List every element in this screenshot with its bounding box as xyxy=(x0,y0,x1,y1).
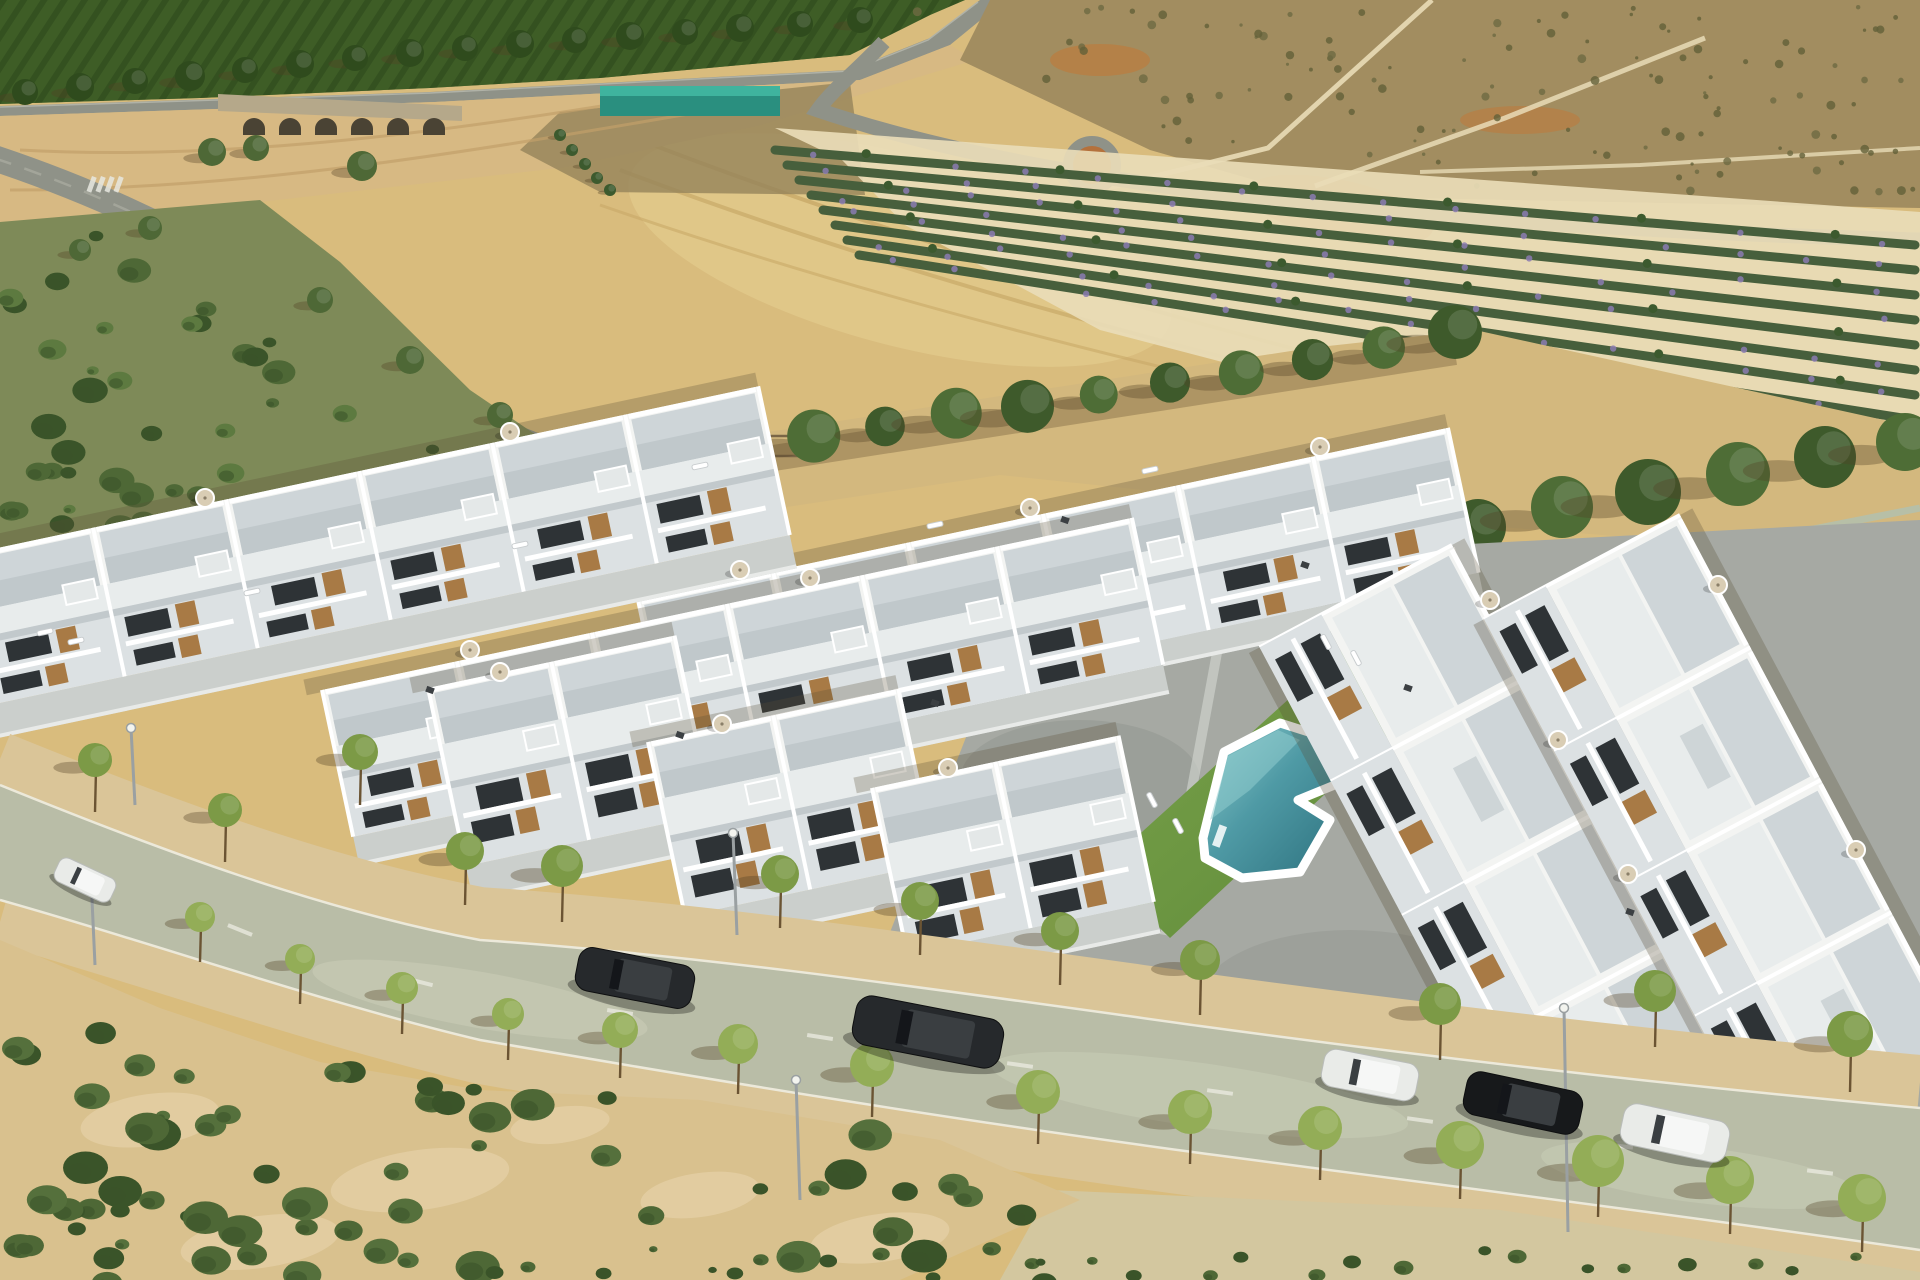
bush-shade xyxy=(112,1209,123,1217)
scrub-dot xyxy=(1372,78,1377,83)
lavender-dot xyxy=(1211,293,1217,299)
row-sapling xyxy=(1834,327,1843,336)
tree-highlight xyxy=(681,21,695,35)
tree-highlight xyxy=(595,173,602,180)
lavender-dot xyxy=(1803,257,1809,263)
bush-shade xyxy=(97,326,107,333)
row-sapling xyxy=(1443,198,1452,207)
tree-highlight xyxy=(460,835,481,856)
tree-highlight xyxy=(296,947,313,964)
parasol-pole xyxy=(946,766,949,769)
tree-highlight xyxy=(1844,1015,1869,1040)
bush-shade xyxy=(216,1112,231,1123)
scrub-dot xyxy=(1287,12,1292,17)
tree-highlight xyxy=(504,1001,522,1019)
scrub-dot xyxy=(1388,66,1392,70)
tree-highlight xyxy=(147,218,160,231)
scrub-dot xyxy=(1417,126,1425,134)
scrub-dot xyxy=(1042,75,1050,83)
parasol-pole xyxy=(1488,598,1491,601)
scrub-dot xyxy=(1799,153,1805,159)
tree-highlight xyxy=(807,414,836,443)
row-sapling xyxy=(1836,376,1845,385)
lavender-dot xyxy=(1164,180,1170,186)
tree-highlight xyxy=(615,1015,635,1035)
lamp-head xyxy=(1560,1004,1569,1013)
scrub-dot xyxy=(1080,47,1088,55)
tree-highlight xyxy=(915,885,936,906)
bush-shade xyxy=(709,1269,714,1272)
lavender-dot xyxy=(1873,289,1879,295)
bush-shade xyxy=(186,1213,211,1231)
lavender-dot xyxy=(1265,261,1271,267)
lavender-dot xyxy=(1119,227,1125,233)
bush-shade xyxy=(754,1258,763,1264)
row-sapling xyxy=(1249,181,1258,190)
lavender-dot xyxy=(944,254,950,260)
bush-shade xyxy=(640,1213,654,1224)
scrub-dot xyxy=(1667,30,1670,33)
row-sapling xyxy=(1110,270,1119,279)
scrub-dot xyxy=(1334,65,1342,73)
bush-shade xyxy=(217,429,228,437)
scrub-dot xyxy=(1850,186,1858,194)
tree-highlight xyxy=(1448,310,1478,340)
row-sapling xyxy=(1831,230,1840,239)
lavender-dot xyxy=(1194,253,1200,259)
bush-shade xyxy=(264,341,272,346)
wood-panel xyxy=(1082,653,1106,677)
scrub-dot xyxy=(1676,174,1682,180)
lavender-dot xyxy=(1737,230,1743,236)
lavender-dot xyxy=(1386,215,1392,221)
scrub-dot xyxy=(1367,152,1373,158)
scrub-dot xyxy=(1826,101,1835,110)
tree-highlight xyxy=(1649,974,1672,997)
bush-shade xyxy=(1036,1261,1041,1265)
lavender-dot xyxy=(1522,211,1528,217)
bush-shade xyxy=(1344,1260,1354,1267)
wood-panel xyxy=(311,606,335,630)
bush-shade xyxy=(599,1096,609,1104)
row-sapling xyxy=(1263,220,1272,229)
lavender-dot xyxy=(1033,183,1039,189)
bush-shade xyxy=(127,1062,144,1074)
bush-shade xyxy=(1009,1212,1025,1224)
tree-highlight xyxy=(1307,343,1330,366)
scrub-dot xyxy=(1481,93,1489,101)
lavender-dot xyxy=(1322,251,1328,257)
scrub-dot xyxy=(1659,23,1666,30)
tree-highlight xyxy=(1020,384,1049,413)
tree-highlight xyxy=(1591,1139,1620,1168)
bush-shade xyxy=(30,1196,52,1212)
row-sapling xyxy=(1092,235,1101,244)
lavender-dot xyxy=(952,163,958,169)
lavender-dot xyxy=(989,231,995,237)
scrub-dot xyxy=(1703,94,1708,99)
lavender-dot xyxy=(964,180,970,186)
bush-shade xyxy=(197,1122,214,1135)
scrub-dot xyxy=(1787,150,1793,156)
tree-highlight xyxy=(186,64,203,81)
scrub-dot xyxy=(1782,39,1789,46)
tree-highlight xyxy=(208,140,223,155)
bush-shade xyxy=(1026,1262,1034,1268)
lavender-dot xyxy=(919,218,925,224)
scrub-dot xyxy=(1723,157,1731,165)
bush-shade xyxy=(1618,1267,1625,1272)
lavender-dot xyxy=(1151,299,1157,305)
scrub-dot xyxy=(1161,124,1165,128)
lavender-dot xyxy=(1404,279,1410,285)
bush-shade xyxy=(514,1100,538,1118)
lavender-dot xyxy=(1408,321,1414,327)
scrub-dot xyxy=(1743,59,1748,64)
scrub-dot xyxy=(1248,88,1252,92)
bush-shade xyxy=(102,477,122,491)
scrub-dot xyxy=(1349,109,1355,115)
tree-highlight xyxy=(775,858,796,879)
scrub-dot xyxy=(1717,171,1724,178)
lavender-dot xyxy=(1598,279,1604,285)
scrub-dot xyxy=(1897,186,1906,195)
tree-highlight xyxy=(1235,354,1260,379)
bush-shade xyxy=(459,1262,483,1280)
bush-shade xyxy=(780,1252,804,1270)
wood-panel xyxy=(710,521,734,545)
bush-shade xyxy=(297,1225,309,1234)
row-sapling xyxy=(1643,259,1652,268)
bush-shade xyxy=(434,1100,452,1113)
tree-highlight xyxy=(1454,1125,1480,1151)
lavender-dot xyxy=(1879,241,1885,247)
lavender-dot xyxy=(1145,283,1151,289)
scrub-dot xyxy=(1770,97,1776,103)
row-sapling xyxy=(862,149,871,158)
teal-shed-roof xyxy=(600,86,780,96)
bush-shade xyxy=(1749,1262,1757,1268)
bush-shade xyxy=(34,423,53,437)
tree-highlight xyxy=(571,29,585,43)
scrub-dot xyxy=(1655,75,1664,84)
bush-shade xyxy=(122,492,141,506)
parasol-pole xyxy=(1716,583,1719,586)
parasol-pole xyxy=(1854,848,1857,851)
bush-shade xyxy=(96,1255,113,1267)
lavender-dot xyxy=(876,244,882,250)
wood-panel xyxy=(178,634,202,658)
scrub-dot xyxy=(1566,128,1570,132)
scrub-dot xyxy=(1868,150,1874,156)
bush-shade xyxy=(386,1169,400,1179)
scrub-dot xyxy=(1686,187,1695,196)
lavender-dot xyxy=(810,152,816,158)
lavender-dot xyxy=(1811,355,1817,361)
lavender-dot xyxy=(1461,242,1467,248)
parasol-pole xyxy=(468,648,471,651)
scrub-dot xyxy=(1813,166,1821,174)
bush-shade xyxy=(143,431,155,439)
scrub-dot xyxy=(1336,92,1344,100)
dirt-patch xyxy=(1050,44,1150,76)
row-sapling xyxy=(1832,278,1841,287)
scrub-dot xyxy=(1893,149,1898,154)
tree-highlight xyxy=(296,52,311,67)
lavender-dot xyxy=(1406,296,1412,302)
bush-shade xyxy=(265,369,283,382)
bush-shade xyxy=(175,1074,187,1082)
tree-highlight xyxy=(733,1027,755,1049)
scrub-dot xyxy=(1577,54,1586,63)
scrub-dot xyxy=(1231,140,1234,143)
row-sapling xyxy=(884,181,893,190)
bush-shade xyxy=(1395,1266,1406,1274)
scrub-dot xyxy=(1690,162,1693,165)
row-sapling xyxy=(1637,214,1646,223)
tree-highlight xyxy=(1314,1110,1338,1134)
scrub-dot xyxy=(1778,146,1782,150)
lavender-dot xyxy=(1741,347,1747,353)
scrub-dot xyxy=(1863,29,1866,32)
bush-shade xyxy=(194,1256,216,1272)
lavender-dot xyxy=(1878,388,1884,394)
scrub-dot xyxy=(1328,51,1336,59)
scrub-dot xyxy=(1630,13,1633,16)
lavender-dot xyxy=(1388,239,1394,245)
scrub-dot xyxy=(1422,152,1425,155)
scrub-dot xyxy=(1547,29,1556,38)
lavender-dot xyxy=(1095,175,1101,181)
bush-shade xyxy=(894,1189,908,1199)
wood-panel xyxy=(45,663,69,687)
lavender-dot xyxy=(1737,276,1743,282)
bush-shade xyxy=(0,295,14,305)
bush-shade xyxy=(1234,1256,1242,1262)
bush-shade xyxy=(1851,1256,1857,1261)
bush-shade xyxy=(109,378,123,388)
scrub-dot xyxy=(1286,51,1294,59)
scrub-dot xyxy=(1147,20,1156,29)
scrub-dot xyxy=(1839,160,1844,165)
scrub-dot xyxy=(1649,74,1653,78)
tree-highlight xyxy=(196,905,213,922)
scrub-dot xyxy=(1591,76,1600,85)
scrub-dot xyxy=(1797,92,1803,98)
scrub-dot xyxy=(1661,127,1670,136)
lavender-dot xyxy=(1669,289,1675,295)
bush-shade xyxy=(1583,1267,1590,1272)
tree-highlight xyxy=(1184,1094,1208,1118)
scrub-dot xyxy=(1680,54,1687,61)
parasol-pole xyxy=(508,430,511,433)
bush-shade xyxy=(597,1272,606,1278)
bush-shade xyxy=(754,1187,763,1193)
lavender-dot xyxy=(1452,206,1458,212)
lavender-dot xyxy=(1521,233,1527,239)
bush-shade xyxy=(821,1259,831,1266)
bush-shade xyxy=(255,1172,269,1182)
tree-highlight xyxy=(220,796,239,815)
scrub-dot xyxy=(1898,78,1903,83)
bush-shade xyxy=(128,1124,152,1142)
tree-highlight xyxy=(856,9,870,23)
bush-shade xyxy=(66,1163,91,1181)
scrub-dot xyxy=(1831,134,1837,140)
bush-shade xyxy=(267,402,274,407)
tree-highlight xyxy=(1856,1178,1882,1204)
scrub-dot xyxy=(1603,151,1610,158)
scrub-dot xyxy=(1326,37,1333,44)
bush-shade xyxy=(239,1252,255,1264)
bush-shade xyxy=(285,1199,310,1217)
tree-highlight xyxy=(241,59,255,73)
bush-shade xyxy=(141,1198,155,1208)
bush-shade xyxy=(167,489,177,496)
bush-shade xyxy=(337,1228,353,1239)
aerial-render-svg xyxy=(0,0,1920,1280)
lavender-dot xyxy=(1535,293,1541,299)
scrub-dot xyxy=(1851,102,1856,107)
lavender-dot xyxy=(839,198,845,204)
tree-highlight xyxy=(570,145,577,152)
tree-highlight xyxy=(351,47,365,61)
row-sapling xyxy=(1654,349,1663,358)
bush-shade xyxy=(183,322,195,331)
scrub-dot xyxy=(1697,17,1701,21)
scrub-dot xyxy=(1539,89,1546,96)
scrub-dot xyxy=(1462,58,1466,62)
bush-shade xyxy=(219,471,234,482)
lavender-dot xyxy=(1223,307,1229,313)
bush-shade xyxy=(522,1265,530,1271)
scrub-dot xyxy=(1532,170,1538,176)
bush-shade xyxy=(810,1186,822,1194)
bush-shade xyxy=(1479,1249,1486,1254)
lavender-dot xyxy=(822,168,828,174)
lavender-dot xyxy=(890,257,896,263)
scrub-dot xyxy=(1775,60,1784,69)
lavender-dot xyxy=(983,212,989,218)
bush-shade xyxy=(984,1247,994,1254)
scrub-dot xyxy=(1694,45,1703,54)
parasol-pole xyxy=(498,670,501,673)
lamp-head xyxy=(729,829,738,838)
bush-shade xyxy=(852,1131,876,1148)
tree-highlight xyxy=(736,16,751,31)
row-sapling xyxy=(1056,165,1065,174)
lavender-dot xyxy=(1610,345,1616,351)
parasol-pole xyxy=(1318,445,1321,448)
lavender-dot xyxy=(1083,291,1089,297)
bush-shade xyxy=(116,1243,124,1249)
scrub-dot xyxy=(1856,5,1860,9)
scrub-dot xyxy=(1635,56,1638,59)
tree-highlight xyxy=(21,81,35,95)
bush-shade xyxy=(593,1153,610,1165)
scrub-dot xyxy=(1593,150,1597,154)
tree-highlight xyxy=(1032,1074,1056,1098)
bush-shade xyxy=(4,1045,22,1058)
bush-shade xyxy=(366,1248,385,1262)
tree-highlight xyxy=(316,289,330,303)
bush-shade xyxy=(54,449,73,463)
scrub-dot xyxy=(1537,19,1541,23)
scrub-dot xyxy=(1703,91,1706,94)
tree-highlight xyxy=(90,746,109,765)
scrub-dot xyxy=(1860,145,1869,154)
row-sapling xyxy=(1291,297,1300,306)
scrub-dot xyxy=(1893,15,1898,20)
scrub-dot xyxy=(1861,77,1868,84)
bush-shade xyxy=(487,1271,497,1278)
scrub-dot xyxy=(1084,8,1091,15)
tree-highlight xyxy=(461,37,475,51)
bush-shade xyxy=(399,1258,411,1267)
bush-shade xyxy=(1310,1273,1319,1280)
wood-panel xyxy=(577,550,601,574)
bush-shade xyxy=(75,387,95,401)
parasol-pole xyxy=(808,576,811,579)
row-sapling xyxy=(1648,304,1657,313)
bush-shade xyxy=(47,279,60,289)
row-sapling xyxy=(1074,200,1083,209)
lavender-dot xyxy=(903,188,909,194)
scrub-dot xyxy=(1644,145,1648,149)
bush-shade xyxy=(77,1093,97,1107)
parasol-pole xyxy=(1556,738,1559,741)
lavender-dot xyxy=(1663,244,1669,250)
lavender-dot xyxy=(1169,201,1175,207)
scrub-dot xyxy=(1493,19,1501,27)
row-sapling xyxy=(906,212,915,221)
bush-shade xyxy=(28,469,42,479)
bush-shade xyxy=(62,471,71,477)
lavender-dot xyxy=(951,266,957,272)
row-sapling xyxy=(928,244,937,253)
bush-shade xyxy=(7,508,20,517)
lavender-dot xyxy=(1875,361,1881,367)
tree-highlight xyxy=(796,13,810,27)
bush-shade xyxy=(17,1243,33,1255)
bush-shade xyxy=(391,1208,410,1222)
tree-highlight xyxy=(496,404,510,418)
tree-highlight xyxy=(608,185,615,192)
bush-shade xyxy=(419,1084,433,1094)
row-sapling xyxy=(1463,281,1472,290)
scrub-dot xyxy=(1494,114,1501,121)
parasol-pole xyxy=(1028,506,1031,509)
bush-shade xyxy=(1509,1255,1519,1263)
lavender-dot xyxy=(1271,282,1277,288)
lavender-dot xyxy=(1328,272,1334,278)
row-sapling xyxy=(1277,258,1286,267)
lavender-dot xyxy=(1526,255,1532,261)
lavender-dot xyxy=(1079,273,1085,279)
scrub-dot xyxy=(1098,5,1104,11)
scrub-dot xyxy=(1358,9,1365,16)
bush-shade xyxy=(1204,1274,1212,1280)
bush-shade xyxy=(650,1248,655,1251)
parasol-pole xyxy=(203,496,206,499)
lavender-dot xyxy=(1876,261,1882,267)
tree-highlight xyxy=(1195,943,1217,965)
lavender-dot xyxy=(1462,264,1468,270)
lavender-dot xyxy=(968,192,974,198)
lavender-dot xyxy=(1123,242,1129,248)
scrub-dot xyxy=(1442,129,1446,133)
scrub-dot xyxy=(1452,129,1456,133)
